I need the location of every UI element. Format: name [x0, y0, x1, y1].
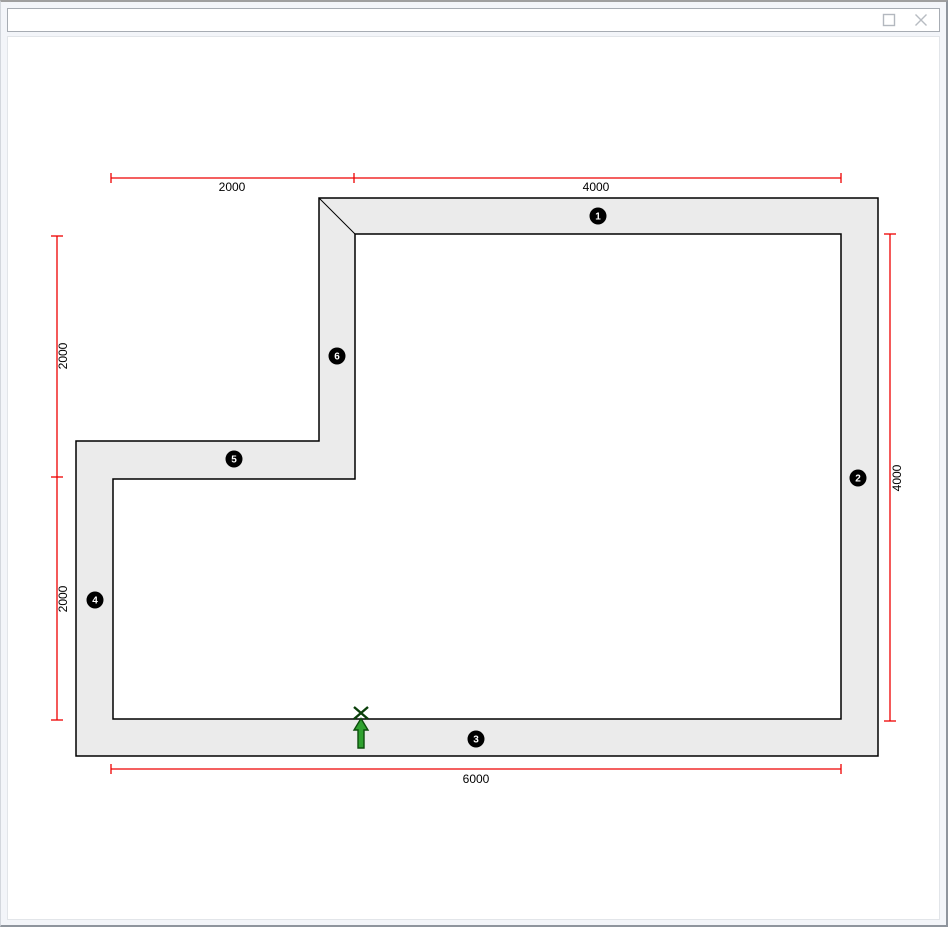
svg-text:3: 3: [473, 735, 479, 746]
app-window: 2000 4000 2000 2000 4000 6000 1: [0, 0, 948, 927]
svg-text:2: 2: [855, 474, 861, 485]
wall-marker-3[interactable]: 3: [468, 731, 485, 748]
wall-marker-6[interactable]: 6: [329, 348, 346, 365]
dimension-label-top-left: 2000: [219, 180, 246, 194]
wall-marker-5[interactable]: 5: [226, 451, 243, 468]
maximize-icon: [882, 13, 896, 27]
dimension-label-right: 4000: [890, 464, 904, 491]
svg-text:5: 5: [231, 455, 237, 466]
dimension-label-top-right: 4000: [583, 180, 610, 194]
close-icon: [914, 13, 928, 27]
wall-marker-2[interactable]: 2: [850, 470, 867, 487]
dimension-label-bottom: 6000: [463, 772, 490, 786]
svg-text:1: 1: [595, 212, 601, 223]
walls-outline[interactable]: [76, 198, 878, 756]
floor-plan: 2000 4000 2000 2000 4000 6000 1: [1, 2, 948, 927]
maximize-button[interactable]: [881, 12, 897, 28]
wall-marker-4[interactable]: 4: [87, 592, 104, 609]
dimension-label-left-upper: 2000: [56, 342, 70, 369]
dimension-label-left-lower: 2000: [56, 585, 70, 612]
close-button[interactable]: [913, 12, 929, 28]
svg-text:6: 6: [334, 352, 340, 363]
title-bar[interactable]: [7, 8, 940, 32]
svg-text:4: 4: [92, 596, 98, 607]
dimension-line-left: [51, 236, 63, 720]
wall-marker-1[interactable]: 1: [590, 208, 607, 225]
